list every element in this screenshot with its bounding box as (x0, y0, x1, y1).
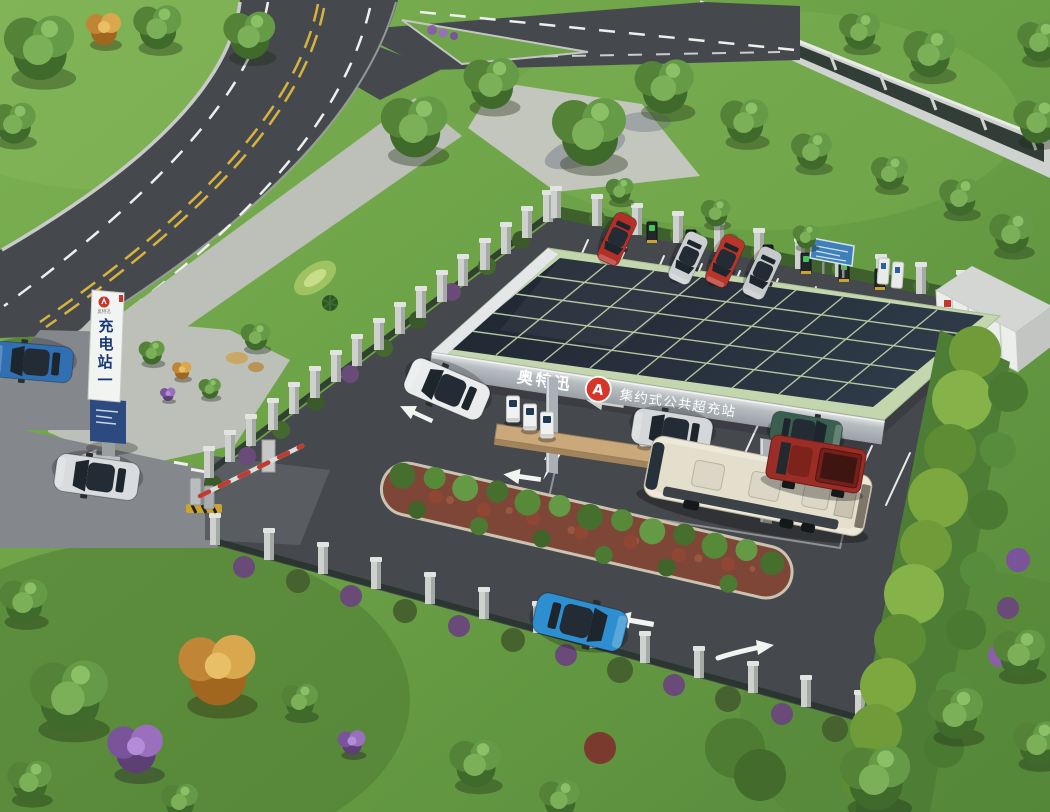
svg-text:一: 一 (97, 371, 112, 389)
sign-brand-small: 奥特迅 (97, 308, 111, 315)
sign-vertical-text: 充 电 站 一 (97, 317, 113, 389)
svg-text:站: 站 (97, 353, 112, 371)
charging-dispenser (504, 396, 522, 427)
container-logo (944, 300, 951, 307)
sign-base (90, 398, 126, 444)
charging-dispenser (521, 404, 539, 435)
charging-dispenser (538, 412, 556, 443)
scene-aerial-ev-charging-station: 奥特迅 A 集约式公共超充站 奥特迅 (0, 0, 1050, 812)
svg-text:充: 充 (98, 317, 113, 335)
svg-text:电: 电 (98, 335, 113, 353)
scene-canvas: 奥特迅 A 集约式公共超充站 奥特迅 (0, 0, 1050, 812)
